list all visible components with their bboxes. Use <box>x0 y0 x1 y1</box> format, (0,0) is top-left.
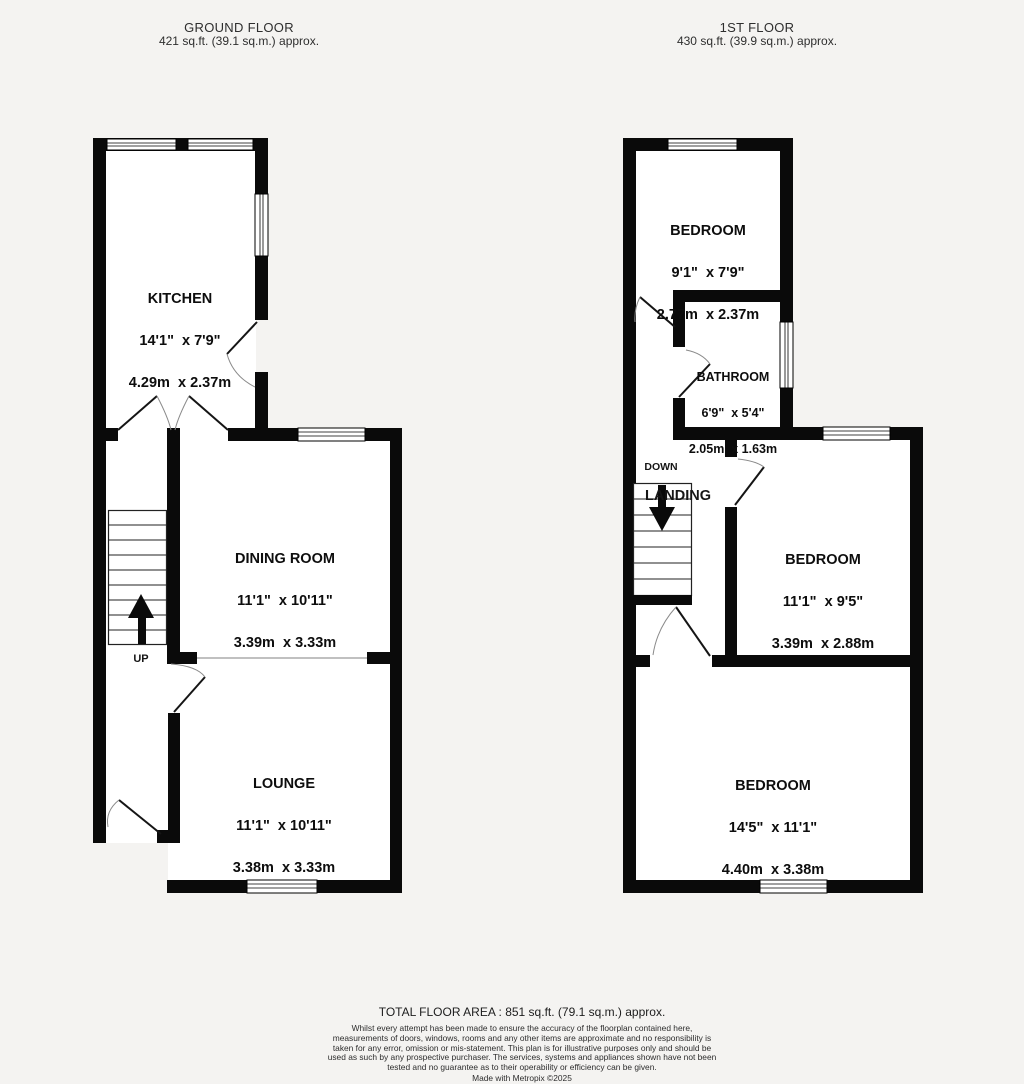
window <box>780 322 793 388</box>
room-name: DINING ROOM <box>234 552 336 566</box>
window <box>188 139 253 150</box>
room-name: BEDROOM <box>772 553 874 567</box>
disclaimer-text: Whilst every attempt has been made to en… <box>327 1024 717 1073</box>
room-size-imperial: 6'9" x 5'4" <box>689 407 777 419</box>
room-size-imperial: 11'1" x 9'5" <box>772 595 874 609</box>
room-size-imperial: 14'5" x 11'1" <box>722 821 824 835</box>
room-label-bathroom: BATHROOM 6'9" x 5'4" 2.05m x 1.63m <box>689 347 777 479</box>
room-size-metric: 4.40m x 3.38m <box>722 863 824 877</box>
window <box>823 427 890 440</box>
metropix-credit: Made with Metropix ©2025 <box>327 1073 717 1084</box>
ground-floor-title: GROUND FLOOR <box>184 20 294 35</box>
footer: TOTAL FLOOR AREA : 851 sq.ft. (79.1 sq.m… <box>327 1005 717 1084</box>
total-floor-area: TOTAL FLOOR AREA : 851 sq.ft. (79.1 sq.m… <box>327 1005 717 1019</box>
landing-label: LANDING <box>645 488 711 504</box>
room-size-imperial: 11'1" x 10'11" <box>234 594 336 608</box>
window <box>255 194 268 256</box>
room-label-bedroom-2: BEDROOM 11'1" x 9'5" 3.39m x 2.88m <box>772 525 874 679</box>
room-label-dining-room: DINING ROOM 11'1" x 10'11" 3.39m x 3.33m <box>234 524 336 678</box>
room-size-metric: 3.39m x 3.33m <box>234 636 336 650</box>
room-size-imperial: 9'1" x 7'9" <box>657 266 759 280</box>
first-floor-title: 1ST FLOOR <box>720 20 795 35</box>
room-label-bedroom-3: BEDROOM 14'5" x 11'1" 4.40m x 3.38m <box>722 751 824 905</box>
ground-floor-area: 421 sq.ft. (39.1 sq.m.) approx. <box>159 34 319 48</box>
room-size-metric: 2.05m x 1.63m <box>689 443 777 455</box>
stairs-up-label: UP <box>133 653 148 665</box>
staircase-up <box>109 511 167 645</box>
window <box>107 139 176 150</box>
room-name: LOUNGE <box>233 777 335 791</box>
room-size-metric: 3.39m x 2.88m <box>772 637 874 651</box>
room-label-bedroom-1: BEDROOM 9'1" x 7'9" 2.77m x 2.37m <box>657 196 759 350</box>
stairs-down-label: DOWN <box>644 461 677 473</box>
room-label-kitchen: KITCHEN 14'1" x 7'9" 4.29m x 2.37m <box>129 264 231 418</box>
floorplan-canvas: GROUND FLOOR 421 sq.ft. (39.1 sq.m.) app… <box>0 0 1024 1072</box>
room-size-imperial: 14'1" x 7'9" <box>129 334 231 348</box>
window <box>298 428 365 441</box>
room-size-metric: 3.38m x 3.33m <box>233 861 335 875</box>
room-name: BEDROOM <box>657 224 759 238</box>
first-floor-area: 430 sq.ft. (39.9 sq.m.) approx. <box>677 34 837 48</box>
window <box>668 139 737 150</box>
room-name: BATHROOM <box>689 371 777 383</box>
room-size-metric: 4.29m x 2.37m <box>129 376 231 390</box>
room-label-lounge: LOUNGE 11'1" x 10'11" 3.38m x 3.33m <box>233 749 335 903</box>
room-name: KITCHEN <box>129 292 231 306</box>
room-name: BEDROOM <box>722 779 824 793</box>
room-size-imperial: 11'1" x 10'11" <box>233 819 335 833</box>
room-size-metric: 2.77m x 2.37m <box>657 308 759 322</box>
